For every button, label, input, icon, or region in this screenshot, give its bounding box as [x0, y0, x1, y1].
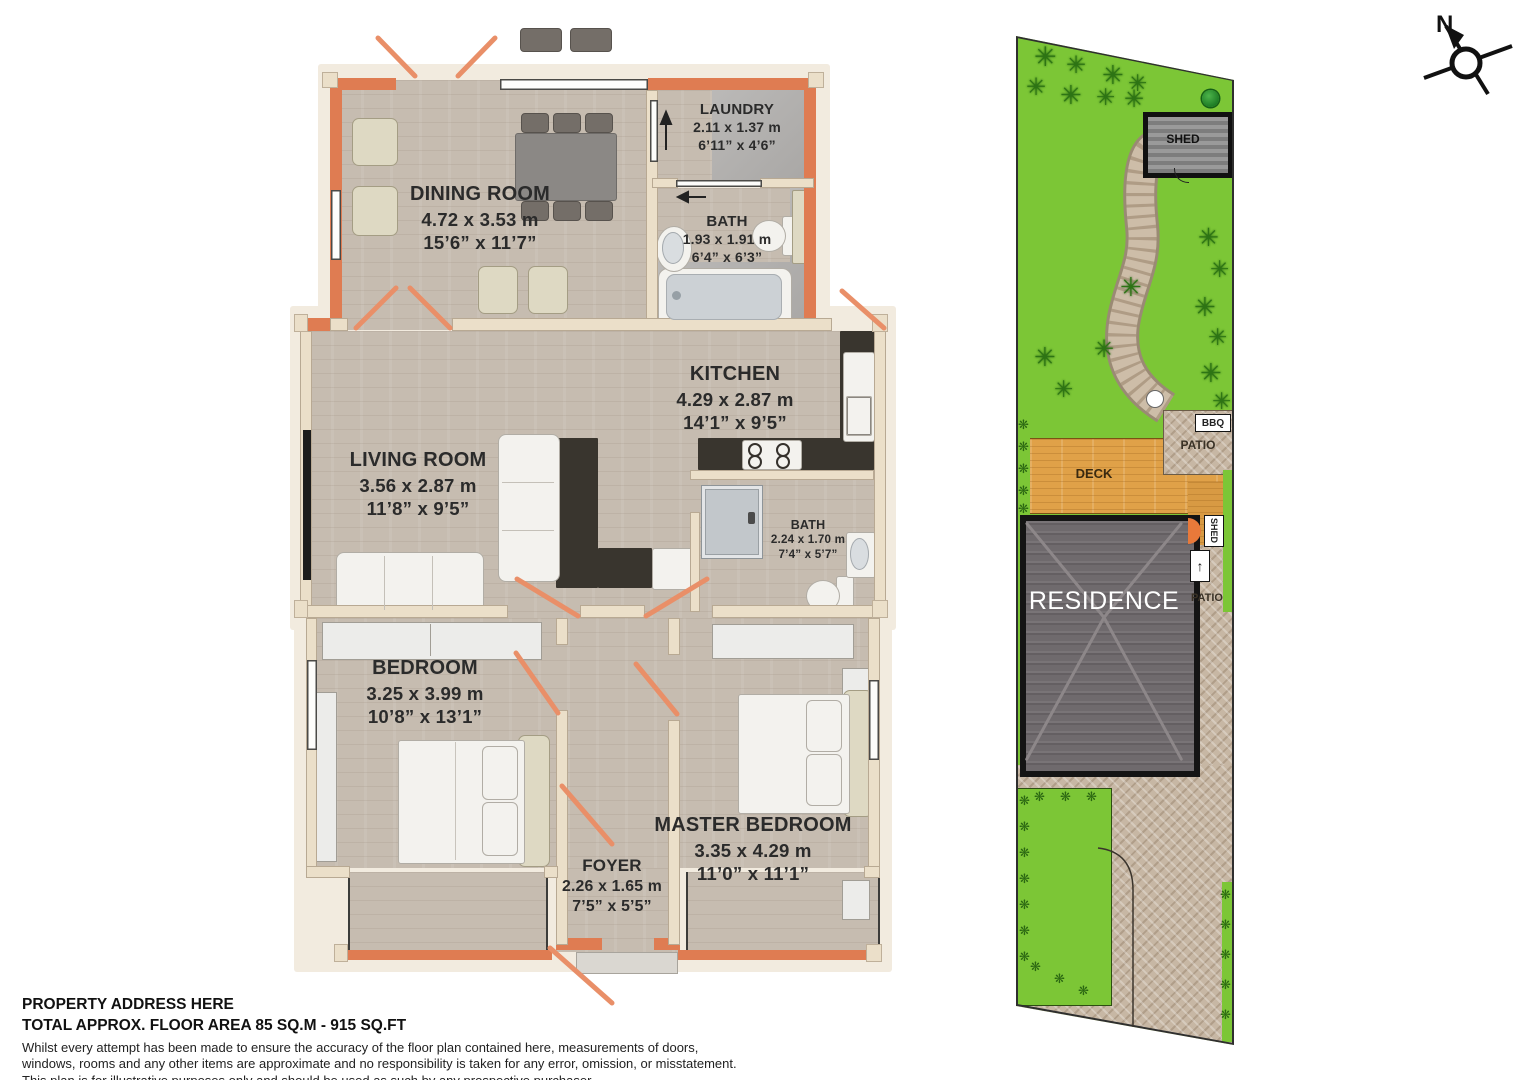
sofa-cushion-line — [384, 556, 385, 610]
burner-icon — [748, 455, 762, 469]
wall-cap — [872, 314, 888, 332]
dining-chair — [521, 113, 549, 133]
wardrobe — [712, 624, 854, 659]
site-plan: SHED ✳ ✳ ✳ ✳ ✳ ✳ ✳ ✳ ✳ ✳ ✳ ✳ ✳ ✳ ✳ ✳ ✳ ✳… — [1016, 30, 1234, 1048]
property-address: PROPERTY ADDRESS HERE — [22, 996, 737, 1015]
room-label-laundry: LAUNDRY 2.11 x 1.37 m 6’11” x 4’6” — [657, 100, 817, 155]
room-name: LIVING ROOM — [308, 448, 528, 474]
room-size-imperial: 6’4” x 6’3” — [652, 249, 802, 267]
room-size-imperial: 6’11” x 4’6” — [657, 137, 817, 155]
plant-icon: ❋ — [1060, 790, 1071, 803]
room-name: MASTER BEDROOM — [638, 813, 868, 839]
room-name: LAUNDRY — [657, 100, 817, 119]
path-arrow-box: ↑ — [1190, 550, 1210, 582]
bush-icon — [1202, 90, 1219, 107]
room-size-imperial: 10’8” x 13’1” — [317, 705, 533, 729]
room-size-imperial: 11’0” x 11’1” — [638, 862, 868, 886]
sliding-door — [676, 180, 762, 187]
wall-cap — [294, 600, 308, 618]
plant-icon: ❋ — [1086, 790, 1097, 803]
plant-icon: ❋ — [1018, 418, 1029, 431]
kitchen-island — [598, 548, 652, 588]
bbq-box: BBQ — [1195, 414, 1231, 432]
room-size-metric: 4.29 x 2.87 m — [625, 388, 845, 412]
tree-icon: ✳ — [1212, 390, 1231, 413]
tree-icon: ✳ — [1198, 226, 1219, 251]
disclaimer-line: Whilst every attempt has been made to en… — [22, 1040, 737, 1056]
room-name: DINING ROOM — [355, 182, 605, 208]
wall — [330, 318, 348, 331]
pillow — [482, 746, 518, 800]
chair — [478, 266, 518, 314]
tree-icon: ✳ — [1096, 86, 1115, 109]
patio-upper-label: PATIO — [1168, 438, 1228, 452]
plant-icon: ❋ — [1019, 898, 1030, 911]
plant-icon: ❋ — [1019, 820, 1030, 833]
plant-icon: ❋ — [1220, 948, 1231, 961]
tree-icon: ✳ — [1210, 258, 1229, 281]
room-name: FOYER — [552, 855, 672, 877]
wall — [690, 512, 700, 612]
footer: PROPERTY ADDRESS HERE TOTAL APPROX. FLOO… — [22, 996, 737, 1080]
tub-faucet-icon — [672, 291, 681, 300]
wall — [302, 605, 508, 618]
exterior-wall — [340, 950, 552, 960]
room-size-metric: 1.93 x 1.91 m — [652, 231, 802, 249]
plant-icon: ❋ — [1018, 484, 1029, 497]
room-name: BATH — [652, 212, 802, 231]
floor-plan: DINING ROOM 4.72 x 3.53 m 15’6” x 11’7” … — [0, 0, 950, 1080]
tree-icon: ✳ — [1034, 44, 1057, 71]
wall-cap — [294, 314, 308, 332]
dining-chair — [585, 113, 613, 133]
burner-icon — [776, 455, 790, 469]
room-size-imperial: 14’1” x 9’5” — [625, 411, 845, 435]
room-size-metric: 2.11 x 1.37 m — [657, 119, 817, 137]
plant-icon: ❋ — [1019, 872, 1030, 885]
wall-cap — [322, 72, 338, 88]
tree-icon: ✳ — [1060, 82, 1082, 108]
plant-icon: ❋ — [1030, 960, 1041, 973]
duvet-line — [455, 742, 456, 860]
disclaimer-line: windows, rooms and any other items are a… — [22, 1056, 737, 1072]
bbq-label: BBQ — [1202, 418, 1224, 429]
outdoor-chair — [570, 28, 612, 52]
tree-icon: ✳ — [1194, 294, 1216, 320]
plant-icon: ❋ — [1019, 794, 1030, 807]
arrow-up-icon: ↑ — [1197, 558, 1204, 574]
room-label-bath1: BATH 1.93 x 1.91 m 6’4” x 6’3” — [652, 212, 802, 267]
room-size-imperial: 7’5” x 5’5” — [552, 897, 672, 917]
room-label-bath2: BATH 2.24 x 1.70 m 7’4” x 5’7” — [753, 517, 863, 563]
tree-icon: ✳ — [1034, 344, 1056, 370]
plant-icon: ❋ — [1018, 462, 1029, 475]
wall-cap — [872, 600, 888, 618]
path-feature-icon — [1146, 390, 1164, 408]
wall-cap — [334, 944, 348, 962]
sofa-cushion-line — [502, 530, 554, 531]
bedroom-bay-window — [348, 872, 548, 952]
plant-icon: ❋ — [1018, 502, 1029, 515]
side-shed-label: SHED — [1209, 518, 1219, 543]
tree-icon: ✳ — [1054, 378, 1073, 401]
window — [307, 660, 317, 750]
plant-icon: ❋ — [1220, 888, 1231, 901]
tree-icon: ✳ — [1094, 338, 1114, 362]
entrance-step — [576, 952, 678, 974]
room-size-imperial: 11’8” x 9’5” — [308, 497, 528, 521]
exterior-wall — [648, 78, 816, 90]
plant-icon: ❋ — [1220, 978, 1231, 991]
room-size-metric: 4.72 x 3.53 m — [355, 208, 605, 232]
pillow — [482, 802, 518, 856]
room-size-metric: 3.25 x 3.99 m — [317, 682, 533, 706]
room-size-metric: 3.56 x 2.87 m — [308, 474, 528, 498]
room-label-master: MASTER BEDROOM 3.35 x 4.29 m 11’0” x 11’… — [638, 813, 868, 886]
residence: RESIDENCE — [1020, 515, 1200, 777]
wall-cap — [808, 72, 824, 88]
room-size-imperial: 15’6” x 11’7” — [355, 231, 605, 255]
plant-icon: ❋ — [1220, 1008, 1231, 1021]
room-size-metric: 2.24 x 1.70 m — [753, 533, 863, 548]
garden-strip — [1223, 470, 1234, 612]
room-label-foyer: FOYER 2.26 x 1.65 m 7’5” x 5’5” — [552, 855, 672, 917]
wall-cap — [866, 944, 882, 962]
dining-chair — [553, 113, 581, 133]
bathtub-basin — [666, 274, 782, 320]
wall — [690, 470, 874, 480]
kitchen-island — [556, 438, 598, 588]
armchair — [352, 118, 398, 166]
room-size-metric: 3.35 x 4.29 m — [638, 839, 868, 863]
room-label-bedroom: BEDROOM 3.25 x 3.99 m 10’8” x 13’1” — [317, 656, 533, 729]
deck-label: DECK — [1064, 466, 1124, 481]
tree-icon: ✳ — [1124, 88, 1144, 112]
wardrobe — [322, 622, 542, 660]
tree-icon: ✳ — [1066, 54, 1086, 78]
plant-icon: ❋ — [1018, 440, 1029, 453]
compass-icon: N — [1416, 0, 1526, 110]
wall — [874, 331, 886, 618]
wardrobe-divider — [430, 624, 431, 656]
tree-icon: ✳ — [1026, 76, 1046, 100]
room-size-imperial: 7’4” x 5’7” — [753, 548, 863, 563]
room-name: BATH — [753, 517, 863, 533]
room-name: KITCHEN — [625, 362, 845, 388]
tree-icon: ✳ — [1120, 274, 1142, 300]
plant-icon: ❋ — [1054, 972, 1065, 985]
tree-icon: ✳ — [1208, 326, 1227, 349]
side-shed-box: SHED — [1204, 515, 1224, 547]
plant-icon: ❋ — [1019, 950, 1030, 963]
plant-icon: ❋ — [1220, 918, 1231, 931]
wall — [452, 318, 832, 331]
disclaimer-line: This plan is for illustrative purposes o… — [22, 1073, 737, 1080]
residence-label: RESIDENCE — [1026, 587, 1182, 616]
floorplan-page: DINING ROOM 4.72 x 3.53 m 15’6” x 11’7” … — [0, 0, 1527, 1080]
shed-label: SHED — [1148, 132, 1218, 146]
plant-icon: ❋ — [1019, 924, 1030, 937]
wall — [556, 618, 568, 645]
chair — [528, 266, 568, 314]
plant-icon: ❋ — [1019, 846, 1030, 859]
pillow — [806, 700, 842, 752]
roof-ridge — [1025, 617, 1106, 762]
plant-icon: ❋ — [1078, 984, 1089, 997]
room-name: BEDROOM — [317, 656, 533, 682]
kitchen-sink-basin — [846, 396, 872, 436]
patio-side-label: PATIO — [1184, 592, 1230, 604]
window — [869, 680, 879, 760]
window — [500, 79, 648, 90]
window — [331, 190, 341, 260]
exterior-wall — [678, 950, 880, 960]
pillow — [806, 754, 842, 806]
wall — [668, 618, 680, 655]
room-size-metric: 2.26 x 1.65 m — [552, 877, 672, 897]
tree-icon: ✳ — [1200, 360, 1222, 386]
wall — [760, 178, 814, 188]
wall — [580, 605, 645, 618]
room-label-kitchen: KITCHEN 4.29 x 2.87 m 14’1” x 9’5” — [625, 362, 845, 435]
room-label-dining: DINING ROOM 4.72 x 3.53 m 15’6” x 11’7” — [355, 182, 605, 255]
room-label-living: LIVING ROOM 3.56 x 2.87 m 11’8” x 9’5” — [308, 448, 528, 521]
floor-area: TOTAL APPROX. FLOOR AREA 85 SQ.M - 915 S… — [22, 1017, 737, 1036]
wall — [652, 178, 678, 188]
wall — [712, 605, 884, 618]
wall — [306, 866, 350, 878]
plant-icon: ❋ — [1034, 790, 1045, 803]
outdoor-chair — [520, 28, 562, 52]
roof-ridge — [1103, 617, 1184, 762]
sofa-cushion-line — [432, 556, 433, 610]
